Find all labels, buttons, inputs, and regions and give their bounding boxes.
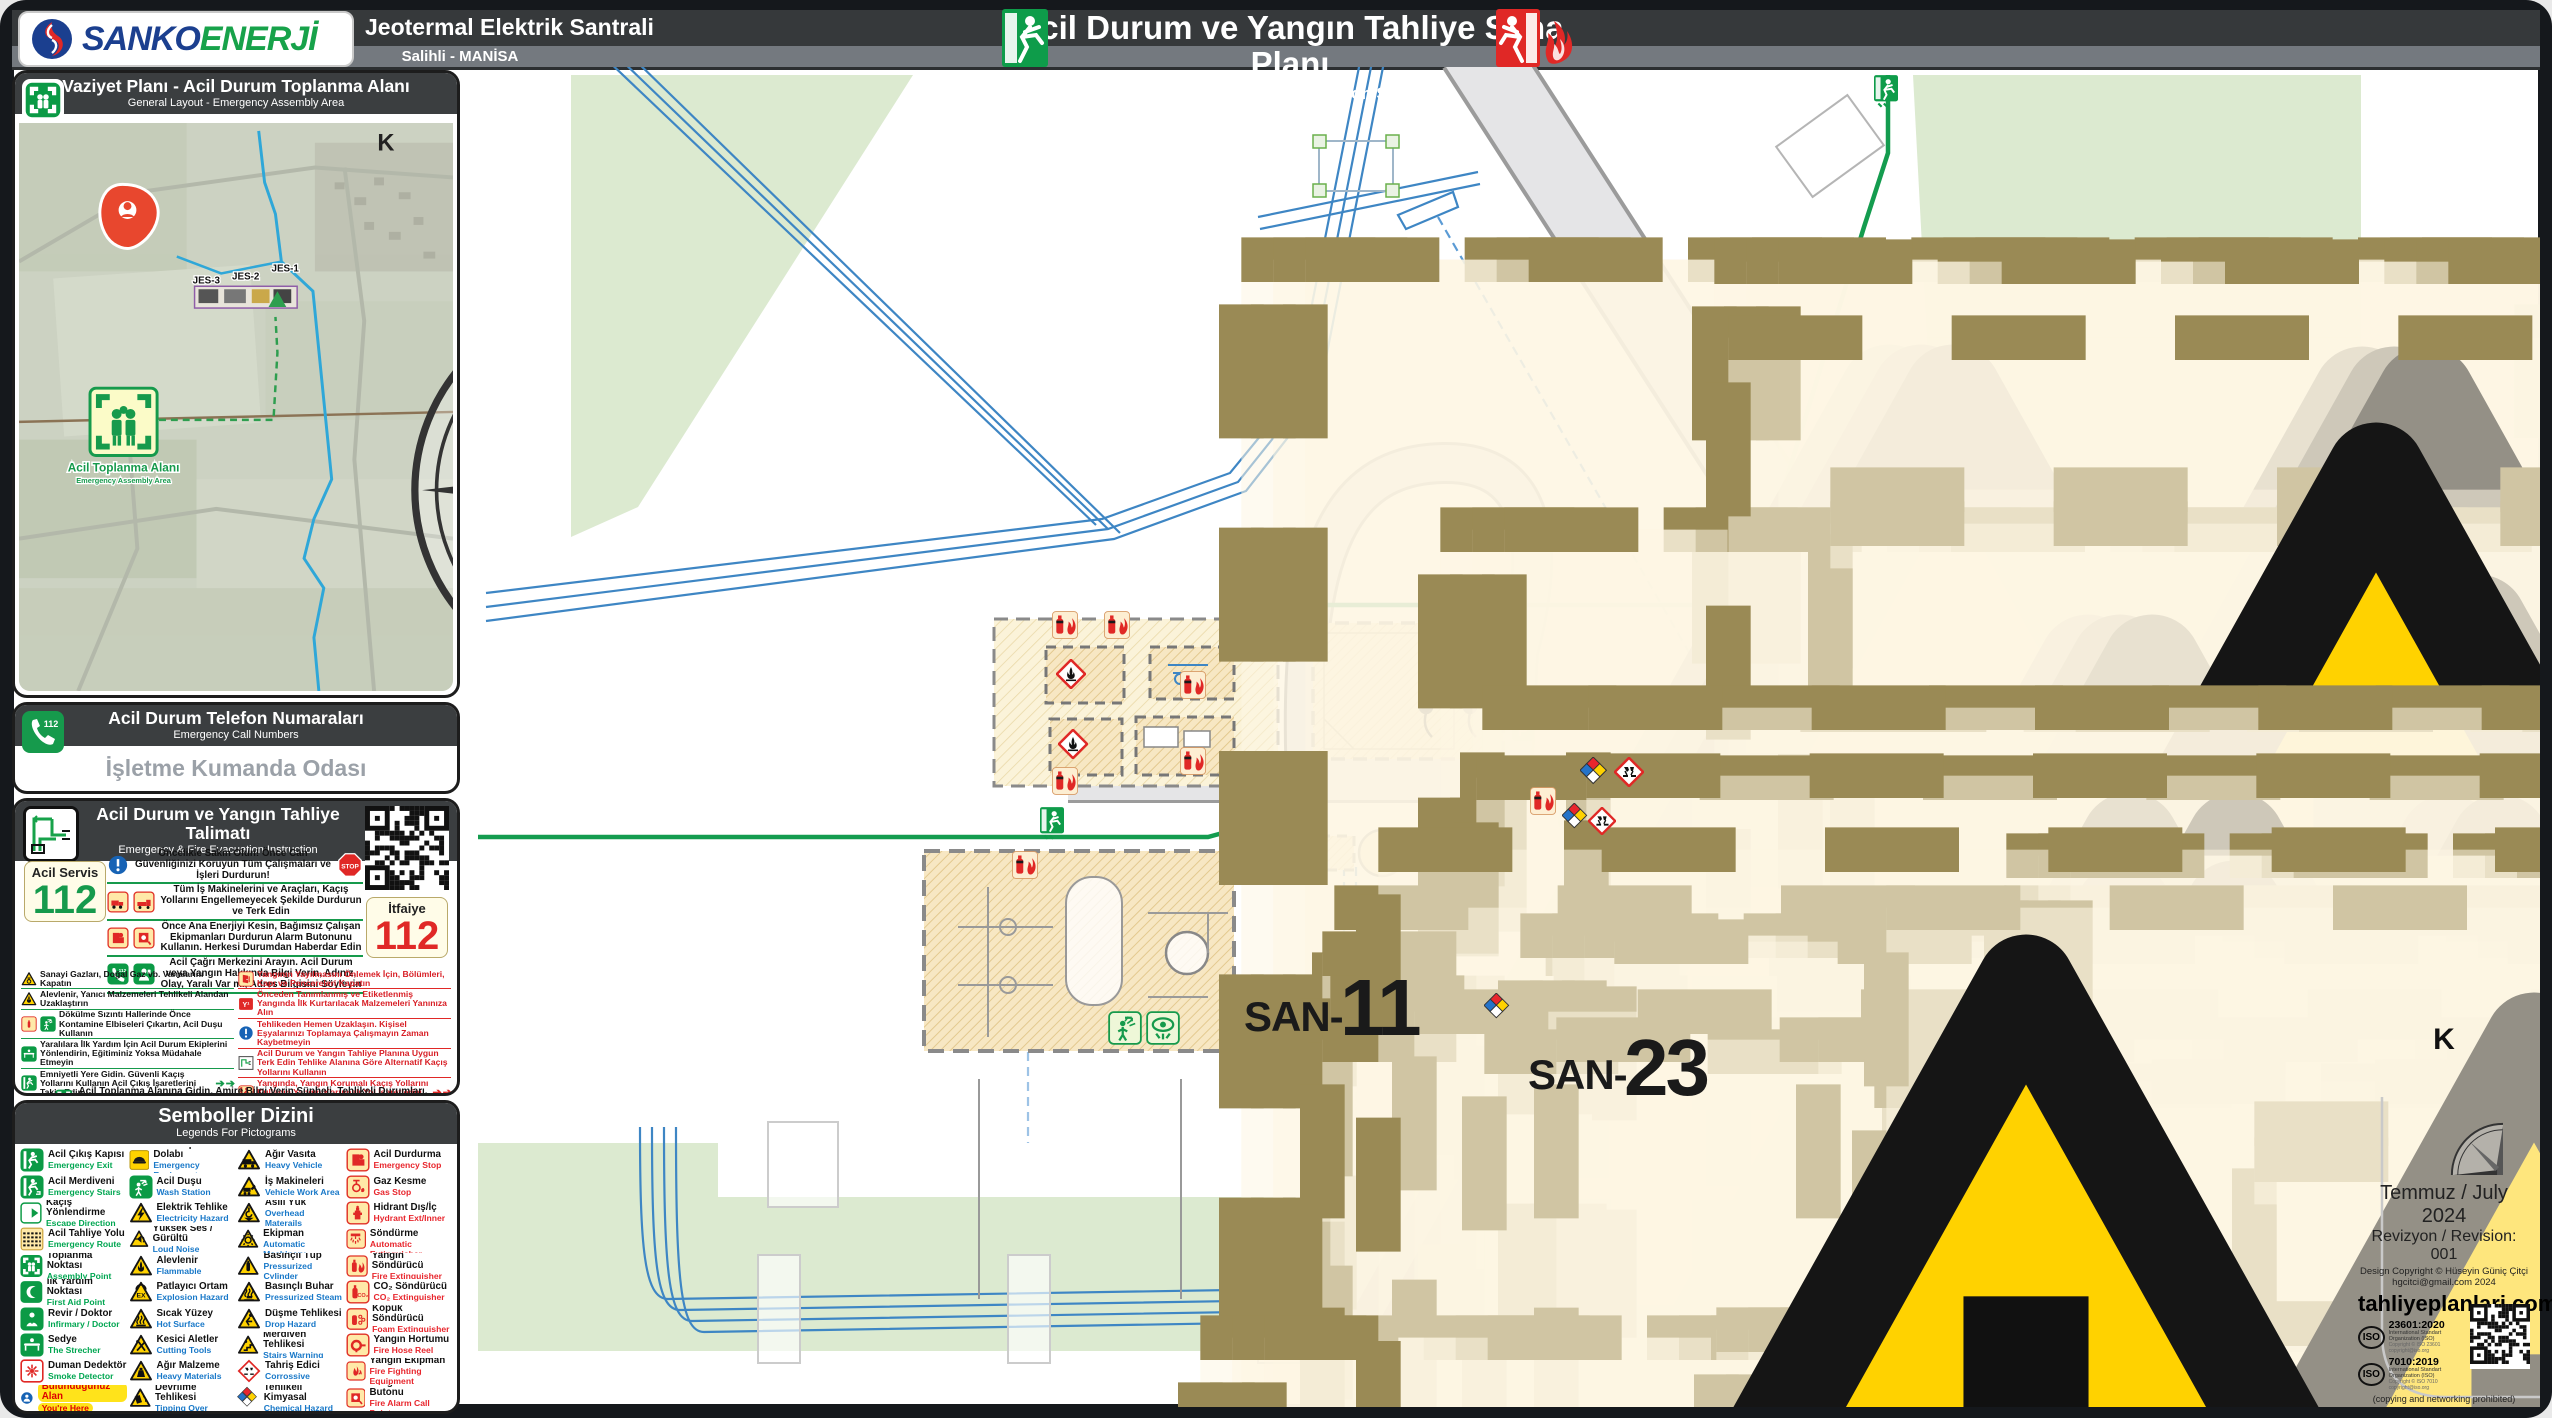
satellite-map: JES-3 JES-2 JES-1 [19, 123, 453, 691]
binfo-icon [238, 1025, 254, 1041]
legend-item: Otomatik SöndürmeAutomatic Extinguisher [346, 1226, 453, 1252]
restop-icon [107, 927, 129, 949]
phones-panel: 112 Acil Durum Telefon Numaraları Emerge… [12, 702, 460, 794]
compass-label: K [2358, 1023, 2530, 1057]
legend-item: Duman DedektörSmoke Detector [20, 1358, 127, 1384]
map-compass-label: K [377, 131, 394, 157]
evacuation-plan-sheet: SANKOENERJİ Jeotermal Elektrik Santrali … [0, 0, 2552, 1418]
copy-prohibition: (copying and networking prohibited) [2358, 1394, 2530, 1404]
texplosion-icon: EX [129, 1280, 153, 1304]
tdigger-icon [237, 1175, 261, 1199]
instruction-row: Öncelikle Sakin Olun! Önce Can Güvenliği… [107, 848, 363, 884]
legend-item: Acil DurdurmaEmergency Stop [346, 1147, 453, 1173]
stamp-qr-code [2470, 1304, 2530, 1369]
legend-item: Kaçış YönlendirmeEscape Direction [20, 1200, 127, 1226]
tsteam-icon [237, 1280, 261, 1304]
phone-icon: 112 [22, 711, 64, 753]
ralarm-icon [133, 927, 155, 949]
overview-subtitle: General Layout - Emergency Assembly Area [61, 97, 411, 109]
legend-item: Tehlikeli KimyasalChemical Hazard [237, 1385, 344, 1411]
tgas-icon [21, 971, 37, 987]
gassembly-icon [55, 1087, 73, 1096]
lnfpa-icon [237, 1386, 260, 1410]
legend-item: İş MakineleriVehicle Work Area [237, 1173, 344, 1199]
legend-item: Toplanma NoktasıAssembly Point [20, 1253, 127, 1279]
plan-date: Temmuz / July 2024 [2358, 1182, 2530, 1228]
legend-item: Hidrant Dış/İçHydrant Ext/Inner [346, 1200, 453, 1226]
rco2-icon: CO₂ [346, 1280, 370, 1304]
lroute-icon [20, 1227, 44, 1251]
legend-item: Gaz KesmeGas Stop [346, 1173, 453, 1199]
rdoor-icon [238, 971, 254, 987]
designer-email: hgcitci@gmail.com 2024 [2358, 1277, 2530, 1288]
tbolt-icon [129, 1201, 153, 1225]
overview-panel: Vaziyet Planı - Acil Durum Toplanma Alan… [12, 70, 460, 698]
map-label-jes3: JES-3 [193, 275, 221, 286]
svg-text:EX: EX [136, 1293, 146, 1300]
legend-item: Acil Tahliye YoluEmergency Route [20, 1226, 127, 1252]
compass-rose [2385, 1057, 2503, 1175]
instruction-row: Acil Durum ve Yangın Tahliye Planına Uyg… [238, 1049, 451, 1079]
legend-item: Revir / DoktorInfirmary / Doctor [20, 1305, 127, 1331]
legend-item: Acil MerdiveniEmergency Stairs [20, 1173, 127, 1199]
site-plan: P [468, 67, 2540, 1407]
exit-man-icon [1002, 9, 1048, 67]
rhydrant-icon [346, 1201, 370, 1225]
exit-marker-icon [1040, 807, 1064, 839]
phones-subtitle: Emergency Call Numbers [61, 729, 411, 741]
rfoam-icon [346, 1307, 369, 1331]
tstairs-icon [237, 1333, 259, 1357]
map-assembly-label: Acil Toplanma Alanı [68, 460, 180, 474]
legend-item: Acil DuşuWash Station [129, 1173, 236, 1199]
powerhouse-san11 [924, 851, 1234, 1051]
rgas-icon [346, 1175, 370, 1199]
company-name: SANKOENERJİ [82, 20, 317, 59]
legend-item: Merdiven TehlikesiStairs Warning [237, 1332, 344, 1358]
legend-item: Bulunduğunuz AlanYou're Here [20, 1385, 127, 1411]
overview-title: Vaziyet Planı - Acil Durum Toplanma Alan… [61, 77, 411, 96]
lfirstaid-icon [20, 1280, 43, 1304]
fire-exit-icon [1496, 9, 1580, 67]
legend-item: Yangın SöndürücüFire Extinguisher [346, 1253, 453, 1279]
tcyl-icon [237, 1254, 259, 1278]
label-san23-prefix: SAN- [1528, 1051, 1627, 1098]
gassembly-icon [20, 1254, 43, 1278]
tflame-icon [129, 1254, 153, 1278]
lstairs-icon [20, 1175, 44, 1199]
rauto-icon [346, 1227, 366, 1251]
instructions-panel: Acil Durum ve Yangın Tahliye Talimatı Em… [12, 798, 460, 1096]
legend-item: Yangın HortumuFire Hose Reel [346, 1332, 453, 1358]
ldoctor-icon [20, 1307, 44, 1331]
rfireeq-icon [346, 1359, 366, 1383]
lcabinet-icon [129, 1148, 150, 1172]
instruction-row: Alevlenir, Yanıcı Malzemeleri Tehlikeli … [21, 989, 234, 1009]
title-block: K Temmuz / July 2024 Revizyon / Revision… [2358, 1023, 2530, 1404]
phones-entry: İşletme Kumanda Odası [96, 756, 376, 780]
legend-item: Otomatik EkipmanAutomatic Machinery [237, 1226, 344, 1252]
legend-item: CO₂CO₂ SöndürücüCO₂ Extinguisher [346, 1279, 453, 1305]
instructions-bottom-item: Acil Toplanma Alanına Gidin, Amire Bilgi… [55, 1087, 437, 1096]
legend-item: Sıcak YüzeyHot Surface [129, 1305, 236, 1331]
rveh2-icon [133, 891, 155, 913]
fire-brigade-number-box: İtfaiye 112 [366, 897, 448, 958]
rext-icon [346, 1254, 368, 1278]
instruction-row: Önce Ana Enerjiyi Kesin, Bağımsız Çalışa… [107, 921, 363, 957]
gstretch-icon [21, 1046, 37, 1062]
instruction-row: Tehlikeden Hemen Uzaklaşın. Kişisel Eşya… [238, 1019, 451, 1049]
instructions-title: Acil Durum ve Yangın Tahliye Talimatı [79, 805, 357, 843]
restop-icon [346, 1148, 370, 1172]
legend-item: İlk Yardım NoktasıFirst Aid Point [20, 1279, 127, 1305]
phones-title: Acil Durum Telefon Numaraları [61, 709, 411, 728]
legend-item: Basınçlı TüpPressurized Cylinder [237, 1253, 344, 1279]
gshower-icon [40, 1016, 56, 1032]
grun-icon [21, 1075, 37, 1091]
iso-logo: ISO [2358, 1326, 2385, 1349]
stop-sign-icon: STOP [337, 852, 363, 878]
legend-subtitle: Legends For Pictograms [61, 1127, 411, 1139]
legend-item: Yüksek Ses / GürültüLoud Noise [129, 1226, 236, 1252]
hazard-signs [1200, 260, 2540, 1407]
evacuation-plan-icon [23, 806, 79, 862]
gstretch-icon [20, 1333, 44, 1357]
ralarm-icon [346, 1386, 366, 1410]
instruction-row: Dökülme Sızıntı Hallerinde Önce Kontamin… [21, 1010, 234, 1040]
svg-text:STOP: STOP [341, 864, 359, 871]
instructions-right-list: Yangının Yayılmasını Önlemek İçin, Bölüm… [238, 969, 451, 1096]
toverhead-icon [237, 1201, 261, 1225]
ambulance-number-box: Acil Servis 112 [24, 861, 106, 922]
legend-item: Yangın EkipmanFire Fighting Equipment [346, 1358, 453, 1384]
label-san11-prefix: SAN- [1244, 993, 1343, 1040]
legend-item: Ağır MalzemeHeavy Materials [129, 1358, 236, 1384]
tweight-icon [129, 1359, 153, 1383]
legend-item: Yangın Alarm ButonuFire Alarm Call Point [346, 1385, 453, 1411]
legend-item: Ağır VasıtaHeavy Vehicle [237, 1147, 344, 1173]
instructions-left-list: Sanayi Gazları, Doğal Gaz vb. Vanalarını… [21, 969, 234, 1096]
svg-text:Y¹: Y¹ [243, 1002, 251, 1009]
ttruck-icon [237, 1148, 261, 1172]
theat-icon [129, 1307, 153, 1331]
lhere-icon [20, 1386, 34, 1410]
lexit-icon [20, 1148, 44, 1172]
legend-title: Semboller Dizini [61, 1107, 411, 1126]
company-logo: SANKOENERJİ [18, 11, 354, 67]
map-label-jes2: JES-2 [232, 271, 260, 282]
legend-item: Düşme TehlikesiDrop Hazard [237, 1305, 344, 1331]
instruction-row: Yaralılara İlk Yardım İçin Acil Durum Ek… [21, 1039, 234, 1069]
instruction-row: Sanayi Gazları, Doğal Gaz vb. Vanalarını… [21, 969, 234, 989]
legend-item: Köpük SöndürücüFoam Extinguisher [346, 1305, 453, 1331]
legend-item: Acil Çıkış KapısıEmergency Exit [20, 1147, 127, 1173]
iso-badge-23601: ISO 23601:2020 International Standart Or… [2358, 1320, 2464, 1354]
map-label-jes1: JES-1 [272, 263, 300, 274]
ttip-icon [129, 1386, 152, 1410]
structure-topright [1776, 95, 1884, 197]
instruction-row: Yangının Yayılmasını Önlemek İçin, Bölüm… [238, 969, 451, 989]
legend-item: AlevlenirFlammable [129, 1253, 236, 1279]
map-assembly-sublabel: Emergency Assembly Area [76, 476, 171, 485]
facility-name: Jeotermal Elektrik Santrali [365, 14, 654, 41]
svg-text:CO₂: CO₂ [357, 1293, 368, 1299]
legend-panel: Semboller Dizini Legends For Pictograms … [12, 1100, 460, 1414]
qr-code [365, 806, 449, 895]
rcyl-icon [21, 1016, 37, 1032]
plan-revision: Revizyon / Revision: 001 [2358, 1228, 2530, 1264]
gshower-icon [129, 1175, 153, 1199]
legend-item: Asılı YükOverhead Materails [237, 1200, 344, 1226]
legend-item: Elektrik TehlikeElectricity Hazard [129, 1200, 236, 1226]
rveh-icon [107, 891, 129, 913]
lcorr-icon [237, 1359, 261, 1383]
legend-item: Devrilme TehlikesiTipping Over [129, 1385, 236, 1411]
iso-badge-7010: ISO 7010:2019 International Standart Org… [2358, 1357, 2464, 1391]
tcut-icon [129, 1333, 153, 1357]
tauto-icon [237, 1227, 259, 1251]
sanko-logo-icon [30, 17, 74, 61]
legend-item: Basınçlı BuharPressurized Steam [237, 1279, 344, 1305]
instruction-row: Y¹Önceden Tanımlanmış ve Etiketlenmiş Ya… [238, 989, 451, 1019]
label-san23-number: 23 [1624, 1023, 1707, 1112]
tdrop-icon [237, 1307, 261, 1331]
iso-logo: ISO [2358, 1363, 2385, 1386]
label-san11-number: 11 [1340, 963, 1420, 1052]
tnoise-icon [129, 1227, 149, 1251]
page-subtitle: Emergency & Fire Evacuation Site Plan [990, 84, 1590, 104]
svg-text:112: 112 [44, 719, 59, 729]
legend-item: Acil Ekipman DolabıEmergency Equipment [129, 1147, 236, 1173]
lsmoke-icon [20, 1359, 44, 1383]
binfo-icon [107, 854, 129, 876]
rreel-icon [346, 1333, 370, 1357]
designer-credit: Design Copyright © Hüseyin Güniç Çitçi [2358, 1266, 2530, 1277]
facility-location: Salihli - MANİSA [365, 48, 555, 65]
instruction-row: Tüm İş Makinelerini ve Araçları, Kaçış Y… [107, 884, 363, 920]
assembly-icon [22, 79, 64, 121]
rytag-icon: Y¹ [238, 996, 254, 1012]
tflame-icon [21, 991, 37, 1007]
legend-item: Kesici AletlerCutting Tools [129, 1332, 236, 1358]
gassembly-icon [25, 82, 61, 118]
larrow-icon [20, 1201, 42, 1225]
legend-item: Tahriş EdiciCorrossive [237, 1358, 344, 1384]
gplan-icon [238, 1055, 254, 1071]
legend-item: SedyeThe Strecher [20, 1332, 127, 1358]
map-assembly-point [90, 388, 157, 455]
legend-item: EXPatlayıcı OrtamExplosion Hazard [129, 1279, 236, 1305]
